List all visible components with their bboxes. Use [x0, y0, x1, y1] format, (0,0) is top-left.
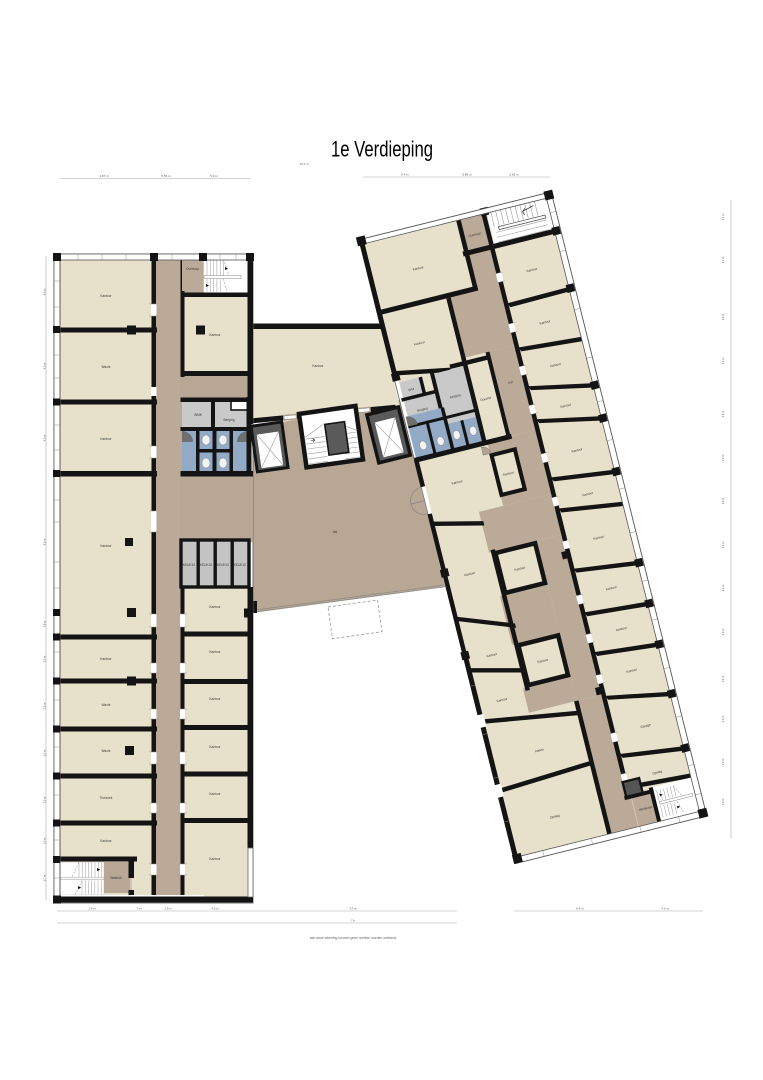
- svg-text:3.2 m: 3.2 m: [43, 750, 47, 757]
- svg-text:Kantoor: Kantoor: [100, 294, 112, 298]
- svg-text:3.0 m: 3.0 m: [721, 716, 725, 723]
- svg-text:Overloop: Overloop: [186, 267, 199, 271]
- svg-text:Techniek: Techniek: [100, 796, 113, 800]
- svg-text:13.7 m: 13.7 m: [299, 162, 309, 166]
- svg-text:3.2 m: 3.2 m: [43, 703, 47, 710]
- svg-text:Kantoor: Kantoor: [209, 605, 221, 609]
- svg-text:4.9 m: 4.9 m: [43, 363, 47, 370]
- svg-text:3.3 m: 3.3 m: [721, 455, 725, 462]
- svg-text:3.0 m: 3.0 m: [721, 799, 725, 806]
- svg-text:Kantoor: Kantoor: [209, 792, 221, 796]
- svg-text:hal: hal: [333, 530, 338, 534]
- svg-text:5.56 m: 5.56 m: [161, 174, 171, 178]
- svg-text:WMK: WMK: [194, 413, 203, 417]
- svg-text:Wacht: Wacht: [102, 749, 111, 753]
- svg-text:KEUK10: KEUK10: [234, 563, 246, 567]
- svg-text:1.9 m: 1.9 m: [164, 907, 172, 911]
- svg-text:4.1 m: 4.1 m: [661, 907, 669, 911]
- svg-text:3.3 m: 3.3 m: [721, 257, 725, 264]
- svg-text:5.65 m: 5.65 m: [509, 173, 519, 177]
- svg-text:4.9 m: 4.9 m: [43, 289, 47, 296]
- svg-text:3.2 m: 3.2 m: [43, 797, 47, 804]
- svg-text:1e Verdieping: 1e Verdieping: [331, 137, 433, 162]
- svg-text:2.5 m: 2.5 m: [43, 838, 47, 845]
- svg-text:4.97 m: 4.97 m: [99, 174, 109, 178]
- svg-text:4.9 m: 4.9 m: [43, 435, 47, 442]
- svg-text:3.3 m: 3.3 m: [721, 358, 725, 365]
- svg-text:3.4 m: 3.4 m: [721, 498, 725, 505]
- svg-text:1.9 m: 1.9 m: [88, 907, 96, 911]
- svg-text:Kantoor: Kantoor: [209, 857, 221, 861]
- svg-text:3.4 m: 3.4 m: [721, 214, 725, 221]
- svg-text:2.7 m: 2.7 m: [43, 875, 47, 882]
- svg-text:Kantoor: Kantoor: [100, 657, 112, 661]
- svg-text:3.4 m: 3.4 m: [721, 314, 725, 321]
- svg-text:3.3 m: 3.3 m: [721, 542, 725, 549]
- svg-text:4.5 m: 4.5 m: [211, 907, 219, 911]
- svg-text:KEUK10: KEUK10: [217, 563, 229, 567]
- svg-text:3.3 m: 3.3 m: [721, 759, 725, 766]
- svg-text:Wacht: Wacht: [102, 703, 111, 707]
- svg-text:3.1 m: 3.1 m: [43, 656, 47, 663]
- svg-text:6.4 m: 6.4 m: [576, 907, 584, 911]
- svg-text:5.4 m: 5.4 m: [401, 173, 409, 177]
- svg-text:Kantoor: Kantoor: [312, 364, 324, 368]
- svg-text:Kantoor: Kantoor: [100, 437, 112, 441]
- svg-text:3.4 m: 3.4 m: [721, 411, 725, 418]
- svg-text:Berging: Berging: [224, 418, 235, 422]
- svg-text:Kantoor: Kantoor: [100, 544, 112, 548]
- svg-text:Kantoor: Kantoor: [100, 839, 112, 843]
- svg-text:5.86 m: 5.86 m: [462, 173, 472, 177]
- svg-text:aan deze tekening kunnen geen: aan deze tekening kunnen geen rechten wo…: [310, 936, 397, 940]
- svg-text:Wacht: Wacht: [102, 365, 111, 369]
- svg-text:Kantoor: Kantoor: [209, 333, 221, 337]
- svg-text:KEUK10: KEUK10: [183, 563, 195, 567]
- svg-text:3.4 m: 3.4 m: [721, 676, 725, 683]
- svg-text:3.4 m: 3.4 m: [721, 585, 725, 592]
- svg-text:5.9 m: 5.9 m: [210, 174, 218, 178]
- svg-text:Washok: Washok: [110, 876, 122, 880]
- svg-text:7 b: 7 b: [351, 919, 356, 923]
- svg-text:1.6 m: 1.6 m: [43, 621, 47, 628]
- svg-text:Kantoor: Kantoor: [209, 745, 221, 749]
- svg-text:Kantoor: Kantoor: [209, 697, 221, 701]
- svg-text:KEUK10: KEUK10: [200, 563, 212, 567]
- svg-text:3.3 m: 3.3 m: [721, 629, 725, 636]
- svg-text:Kantoor: Kantoor: [209, 650, 221, 654]
- svg-text:13 m: 13 m: [350, 907, 357, 911]
- svg-text:7 m: 7 m: [136, 907, 142, 911]
- svg-text:9.6 m: 9.6 m: [43, 539, 47, 546]
